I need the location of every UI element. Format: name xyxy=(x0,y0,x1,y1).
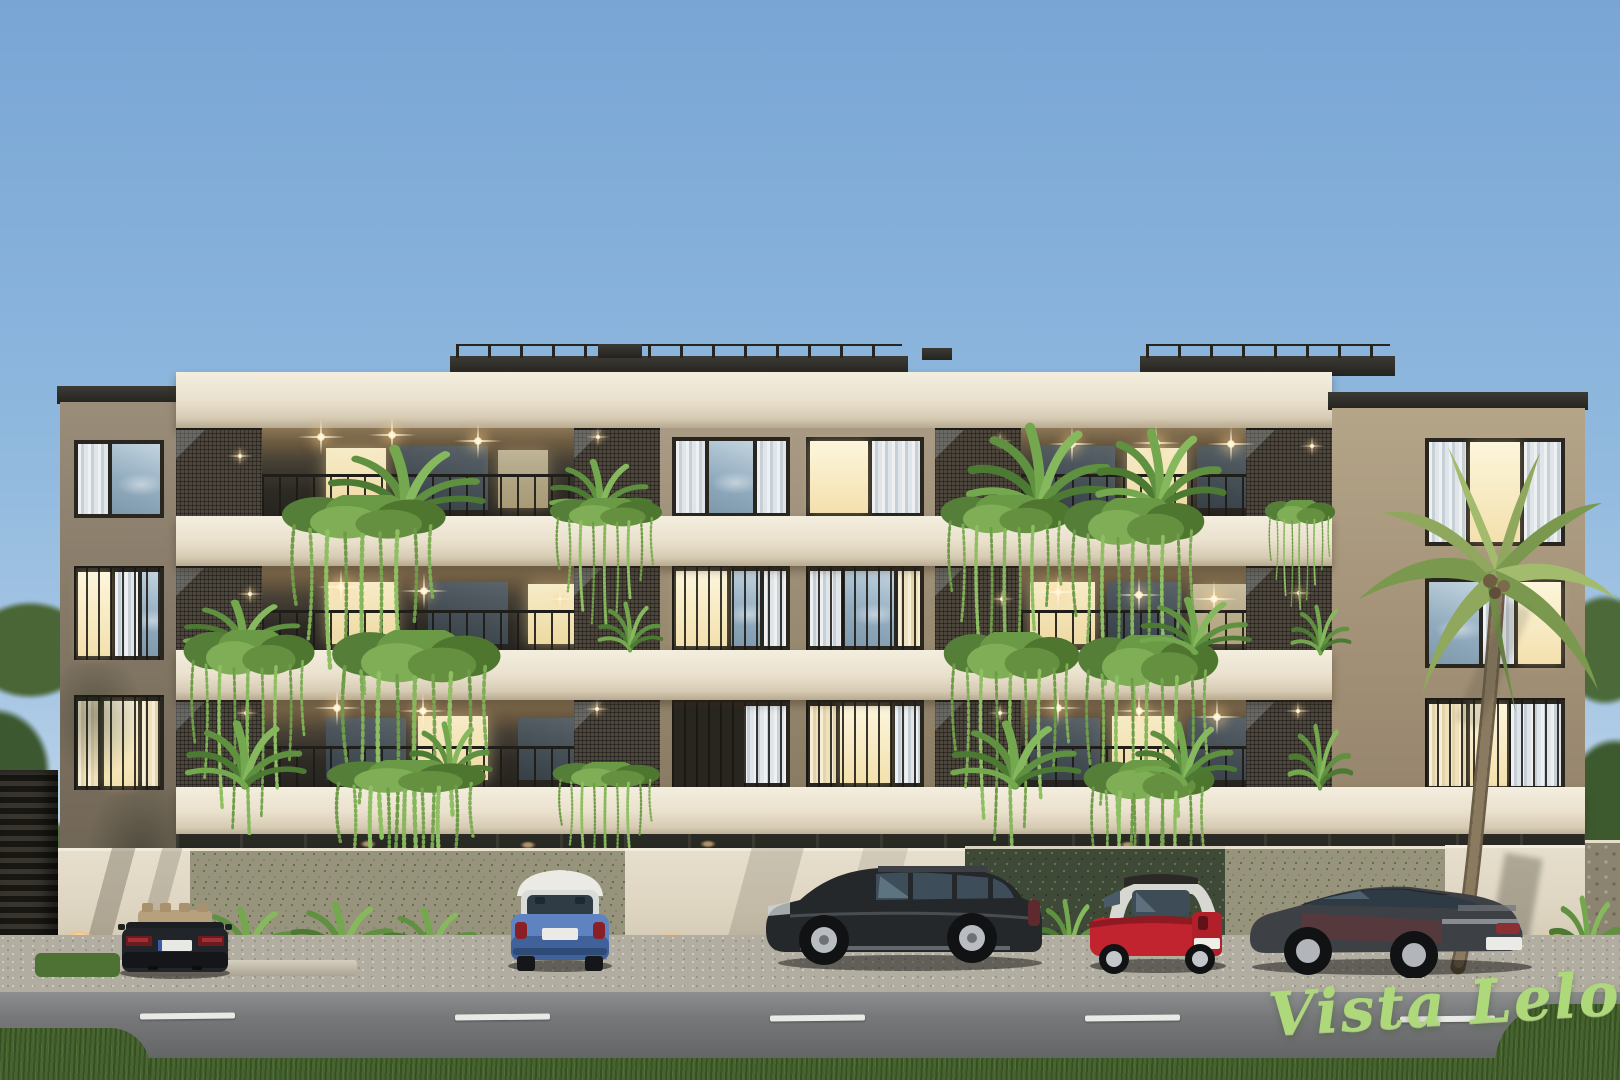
roof-railing xyxy=(456,344,902,358)
road-marking xyxy=(455,1014,550,1021)
balcony-light xyxy=(595,434,601,440)
balcony-light xyxy=(1309,443,1315,449)
window xyxy=(672,437,790,517)
window xyxy=(672,567,790,650)
road-marking xyxy=(770,1015,865,1022)
window xyxy=(806,702,924,787)
architectural-render: Vista Leloir xyxy=(0,0,1620,1080)
roof-railing xyxy=(1146,344,1390,358)
juliet-railing xyxy=(806,700,924,787)
shrub-plant xyxy=(595,585,665,655)
road-marking xyxy=(1085,1015,1180,1022)
balcony-light xyxy=(594,706,600,712)
grass-median xyxy=(35,953,120,977)
window xyxy=(806,437,924,517)
car-red-microcar xyxy=(1080,860,1235,975)
window xyxy=(672,702,790,787)
shrub-plant xyxy=(1135,578,1255,658)
juliet-railing xyxy=(672,700,790,787)
window xyxy=(74,440,164,518)
car-blue-hatchback xyxy=(505,870,615,975)
juliet-railing xyxy=(672,565,790,650)
roof-equipment xyxy=(598,344,642,358)
balcony-light xyxy=(237,453,243,459)
road-marking xyxy=(140,1013,235,1020)
car-black-suv xyxy=(760,846,1045,976)
juliet-railing xyxy=(806,565,924,650)
roof-equipment xyxy=(922,348,952,360)
grass-corner-left xyxy=(0,1028,150,1080)
window xyxy=(806,567,924,650)
mesh-privacy-panel xyxy=(176,428,262,518)
shrub-plant xyxy=(945,698,1085,793)
grass-verge xyxy=(0,1058,1620,1080)
car-dark-convertible xyxy=(118,900,232,980)
car-grey-sedan xyxy=(1242,843,1532,978)
shrub-plant xyxy=(1130,700,1240,790)
shrub-plant xyxy=(180,698,310,793)
